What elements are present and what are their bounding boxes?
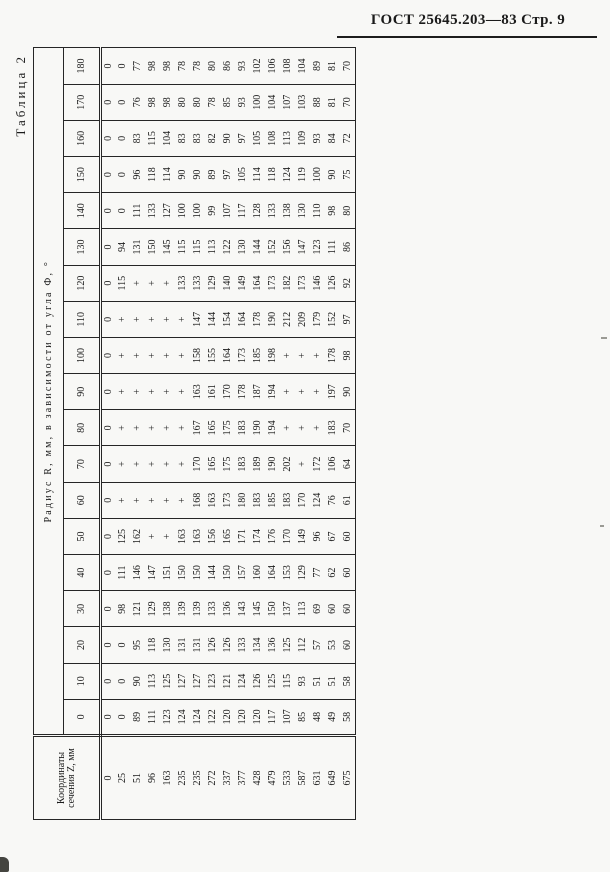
table-row: 96111113118129147++++++++150133118115989…	[146, 48, 161, 820]
r-cell: 113	[281, 120, 296, 156]
r-cell: 60	[341, 518, 356, 554]
r-cell: 125	[161, 663, 176, 699]
table-header-row-1: Координаты сечения Z, мм Радиус R, мм, в…	[34, 48, 64, 820]
z-row-header: 337	[221, 736, 236, 820]
r-cell: 162	[131, 518, 146, 554]
r-cell: 51	[326, 663, 341, 699]
r-cell: 0	[101, 374, 116, 410]
r-cell: 58	[341, 663, 356, 699]
r-cell: 60	[341, 591, 356, 627]
r-cell: 143	[236, 591, 251, 627]
r-cell: +	[281, 374, 296, 410]
r-cell: 126	[251, 663, 266, 699]
r-cell: 136	[266, 627, 281, 663]
r-cell: 149	[296, 518, 311, 554]
angle-col-header: 10	[64, 663, 101, 699]
r-cell: 165	[206, 410, 221, 446]
scan-artifact	[601, 337, 607, 339]
r-cell: 124	[176, 699, 191, 735]
angle-col-header: 160	[64, 120, 101, 156]
r-cell: 107	[221, 193, 236, 229]
r-cell: 125	[281, 627, 296, 663]
rotated-table-block: Таблица 2 Координаты сечения Z, мм Радиу…	[11, 48, 358, 820]
r-cell: 99	[206, 193, 221, 229]
r-cell: 152	[326, 301, 341, 337]
r-cell: 133	[191, 265, 206, 301]
r-cell: 115	[176, 229, 191, 265]
r-cell: +	[131, 337, 146, 373]
r-cell: 115	[146, 120, 161, 156]
r-cell: 90	[191, 157, 206, 193]
r-cell: 151	[161, 555, 176, 591]
r-cell: 97	[236, 120, 251, 156]
angle-col-header: 20	[64, 627, 101, 663]
r-cell: 60	[326, 591, 341, 627]
r-cell: +	[176, 410, 191, 446]
r-cell: 0	[101, 265, 116, 301]
z-row-header: 272	[206, 736, 221, 820]
r-cell: 0	[116, 627, 131, 663]
r-cell: 98	[146, 84, 161, 120]
r-cell: 185	[266, 482, 281, 518]
r-cell: +	[131, 482, 146, 518]
r-cell: 170	[296, 482, 311, 518]
r-cell: 133	[266, 193, 281, 229]
r-cell: 113	[146, 663, 161, 699]
radius-table: Координаты сечения Z, мм Радиус R, мм, в…	[33, 47, 356, 820]
r-cell: 173	[266, 265, 281, 301]
r-cell: 111	[146, 699, 161, 735]
r-cell: 98	[341, 337, 356, 373]
r-cell: 0	[101, 229, 116, 265]
r-cell: 164	[221, 337, 236, 373]
r-cell: 0	[101, 193, 116, 229]
r-cell: 124	[281, 157, 296, 193]
r-cell: 113	[206, 229, 221, 265]
r-cell: 78	[191, 48, 206, 84]
r-cell: 138	[281, 193, 296, 229]
r-cell: +	[116, 446, 131, 482]
r-cell: 133	[176, 265, 191, 301]
r-cell: 212	[281, 301, 296, 337]
r-cell: 165	[221, 518, 236, 554]
r-cell: +	[116, 301, 131, 337]
r-cell: 67	[326, 518, 341, 554]
radius-span-header: Радиус R, мм, в зависимости от угла Ф, °	[34, 48, 64, 736]
scan-artifact	[600, 525, 604, 527]
r-cell: 0	[116, 48, 131, 84]
r-cell: +	[146, 374, 161, 410]
r-cell: 0	[101, 663, 116, 699]
r-cell: 105	[251, 120, 266, 156]
r-cell: 126	[221, 627, 236, 663]
angle-col-header: 90	[64, 374, 101, 410]
z-row-header: 163	[161, 736, 176, 820]
r-cell: 107	[281, 699, 296, 735]
r-cell: 173	[221, 482, 236, 518]
r-cell: 146	[131, 555, 146, 591]
r-cell: 102	[251, 48, 266, 84]
r-cell: 61	[341, 482, 356, 518]
r-cell: 115	[191, 229, 206, 265]
r-cell: 53	[326, 627, 341, 663]
table-row: 51899095121146162+++++++13111196837677	[131, 48, 146, 820]
r-cell: 124	[236, 663, 251, 699]
r-cell: 122	[221, 229, 236, 265]
r-cell: 145	[161, 229, 176, 265]
r-cell: 121	[221, 663, 236, 699]
r-cell: 0	[116, 84, 131, 120]
r-cell: 147	[146, 555, 161, 591]
table-row: 2721221231261331441561631651651611551441…	[206, 48, 221, 820]
r-cell: 90	[326, 157, 341, 193]
r-cell: +	[146, 482, 161, 518]
r-cell: 57	[311, 627, 326, 663]
r-cell: 0	[101, 337, 116, 373]
r-cell: 130	[296, 193, 311, 229]
r-cell: 145	[251, 591, 266, 627]
r-cell: 89	[131, 699, 146, 735]
table-row: 6755858606060606164709098979286807572707…	[341, 48, 356, 820]
r-cell: 97	[341, 301, 356, 337]
angle-col-header: 140	[64, 193, 101, 229]
r-cell: 161	[206, 374, 221, 410]
r-cell: 183	[281, 482, 296, 518]
r-cell: +	[146, 518, 161, 554]
r-cell: 0	[101, 591, 116, 627]
z-row-header: 587	[296, 736, 311, 820]
r-cell: 100	[251, 84, 266, 120]
r-cell: +	[161, 410, 176, 446]
r-cell: 113	[296, 591, 311, 627]
r-cell: 83	[176, 120, 191, 156]
r-cell: 139	[176, 591, 191, 627]
z-row-header: 25	[116, 736, 131, 820]
r-cell: 104	[161, 120, 176, 156]
r-cell: 111	[326, 229, 341, 265]
table-row: 3771201241331431571711801831831781731641…	[236, 48, 251, 820]
r-cell: 104	[266, 84, 281, 120]
r-cell: 70	[341, 84, 356, 120]
r-cell: +	[146, 446, 161, 482]
z-row-header: 649	[326, 736, 341, 820]
r-cell: +	[311, 337, 326, 373]
r-cell: 93	[296, 663, 311, 699]
r-cell: 174	[251, 518, 266, 554]
r-cell: 108	[281, 48, 296, 84]
r-cell: +	[131, 374, 146, 410]
header-rule	[337, 36, 597, 38]
r-cell: 114	[251, 157, 266, 193]
r-cell: 95	[131, 627, 146, 663]
r-cell: +	[131, 265, 146, 301]
r-cell: 178	[251, 301, 266, 337]
r-cell: 130	[236, 229, 251, 265]
r-cell: 125	[266, 663, 281, 699]
r-cell: 173	[236, 337, 251, 373]
r-cell: +	[176, 482, 191, 518]
r-cell: 83	[191, 120, 206, 156]
table-row: 00000000000000000000	[101, 48, 116, 820]
r-cell: 182	[281, 265, 296, 301]
r-cell: 189	[251, 446, 266, 482]
r-cell: 129	[206, 265, 221, 301]
angle-col-header: 40	[64, 555, 101, 591]
r-cell: 90	[341, 374, 356, 410]
r-cell: 183	[251, 482, 266, 518]
r-cell: 0	[101, 157, 116, 193]
table-row: 6494951536062677610618319717815212611198…	[326, 48, 341, 820]
table-row: 5878593112113129149170++++20917314713011…	[296, 48, 311, 820]
r-cell: +	[161, 446, 176, 482]
r-cell: 0	[101, 410, 116, 446]
r-cell: 106	[266, 48, 281, 84]
z-row-header: 96	[146, 736, 161, 820]
table-row: 235124127131139150163++++++1331151009083…	[176, 48, 191, 820]
r-cell: 81	[326, 84, 341, 120]
r-cell: 127	[191, 663, 206, 699]
scanned-page: ГОСТ 25645.203—83 Стр. 9 Таблица 2 Коорд…	[0, 0, 610, 872]
r-cell: 157	[236, 555, 251, 591]
r-cell: +	[116, 374, 131, 410]
r-cell: 76	[131, 84, 146, 120]
r-cell: 98	[146, 48, 161, 84]
r-cell: 89	[311, 48, 326, 84]
r-cell: 109	[296, 120, 311, 156]
r-cell: 69	[311, 591, 326, 627]
r-cell: 147	[296, 229, 311, 265]
r-cell: 178	[326, 337, 341, 373]
r-cell: 98	[161, 48, 176, 84]
r-cell: 209	[296, 301, 311, 337]
r-cell: 117	[266, 699, 281, 735]
r-cell: 112	[296, 627, 311, 663]
r-cell: 155	[206, 337, 221, 373]
r-cell: 136	[221, 591, 236, 627]
r-cell: 140	[221, 265, 236, 301]
table-row: 631485157697796124172+++1791461231101009…	[311, 48, 326, 820]
r-cell: 144	[206, 555, 221, 591]
r-cell: 0	[116, 193, 131, 229]
r-cell: 90	[221, 120, 236, 156]
r-cell: 117	[236, 193, 251, 229]
scan-artifact	[0, 857, 9, 872]
r-cell: 190	[266, 301, 281, 337]
angle-col-header: 130	[64, 229, 101, 265]
r-cell: 183	[236, 410, 251, 446]
r-cell: 78	[206, 84, 221, 120]
table-row: 163123125130138151++++++++14512711410498…	[161, 48, 176, 820]
r-cell: 197	[326, 374, 341, 410]
r-cell: 194	[266, 374, 281, 410]
r-cell: 64	[341, 446, 356, 482]
r-cell: 164	[236, 301, 251, 337]
z-column-header-line2: сечения Z, мм	[67, 737, 77, 819]
r-cell: +	[161, 265, 176, 301]
r-cell: 93	[236, 48, 251, 84]
r-cell: 175	[221, 446, 236, 482]
r-cell: 163	[206, 482, 221, 518]
table-row: 2351241271311391501631681701671631581471…	[191, 48, 206, 820]
r-cell: 98	[116, 591, 131, 627]
r-cell: 176	[266, 518, 281, 554]
angle-col-header: 180	[64, 48, 101, 84]
r-cell: 170	[191, 446, 206, 482]
r-cell: +	[161, 518, 176, 554]
r-cell: +	[296, 446, 311, 482]
r-cell: 80	[176, 84, 191, 120]
r-cell: +	[296, 337, 311, 373]
r-cell: 153	[281, 555, 296, 591]
angle-header-row: 0102030405060708090100110120130140150160…	[64, 48, 101, 820]
z-row-header: 479	[266, 736, 281, 820]
r-cell: 48	[311, 699, 326, 735]
r-cell: +	[131, 410, 146, 446]
r-cell: +	[116, 410, 131, 446]
table-row: 2500098111125++++++1159400000	[116, 48, 131, 820]
r-cell: 82	[206, 120, 221, 156]
r-cell: 111	[131, 193, 146, 229]
r-cell: 80	[341, 193, 356, 229]
z-row-header: 428	[251, 736, 266, 820]
r-cell: 0	[116, 157, 131, 193]
r-cell: 0	[101, 518, 116, 554]
z-column-header: Координаты сечения Z, мм	[34, 736, 101, 820]
r-cell: 119	[296, 157, 311, 193]
z-column-header-line1: Координаты	[57, 737, 67, 819]
r-cell: 77	[311, 555, 326, 591]
r-cell: 147	[191, 301, 206, 337]
r-cell: 80	[191, 84, 206, 120]
angle-col-header: 70	[64, 446, 101, 482]
z-row-header: 235	[176, 736, 191, 820]
r-cell: +	[146, 301, 161, 337]
angle-col-header: 0	[64, 699, 101, 735]
z-row-header: 51	[131, 736, 146, 820]
r-cell: 187	[251, 374, 266, 410]
r-cell: 123	[161, 699, 176, 735]
r-cell: 0	[101, 120, 116, 156]
r-cell: 172	[311, 446, 326, 482]
r-cell: 139	[191, 591, 206, 627]
r-cell: 0	[101, 301, 116, 337]
r-cell: 180	[236, 482, 251, 518]
r-cell: 115	[116, 265, 131, 301]
r-cell: 134	[251, 627, 266, 663]
r-cell: 129	[296, 555, 311, 591]
r-cell: 103	[296, 84, 311, 120]
r-cell: 165	[206, 446, 221, 482]
r-cell: 129	[146, 591, 161, 627]
r-cell: 93	[311, 120, 326, 156]
r-cell: 170	[221, 374, 236, 410]
r-cell: 171	[236, 518, 251, 554]
r-cell: 81	[326, 48, 341, 84]
r-cell: 164	[266, 555, 281, 591]
document-header: ГОСТ 25645.203—83 Стр. 9	[340, 12, 596, 29]
r-cell: 131	[131, 229, 146, 265]
r-cell: 123	[206, 663, 221, 699]
r-cell: 146	[311, 265, 326, 301]
r-cell: 202	[281, 446, 296, 482]
r-cell: 100	[191, 193, 206, 229]
r-cell: 94	[116, 229, 131, 265]
r-cell: 185	[251, 337, 266, 373]
r-cell: 0	[116, 120, 131, 156]
r-cell: 160	[251, 555, 266, 591]
r-cell: +	[161, 482, 176, 518]
r-cell: 58	[341, 699, 356, 735]
r-cell: 190	[266, 446, 281, 482]
r-cell: 75	[341, 157, 356, 193]
r-cell: +	[161, 374, 176, 410]
r-cell: 108	[266, 120, 281, 156]
r-cell: 90	[176, 157, 191, 193]
r-cell: 0	[101, 48, 116, 84]
r-cell: 107	[281, 84, 296, 120]
z-row-header: 533	[281, 736, 296, 820]
r-cell: 62	[326, 555, 341, 591]
r-cell: 183	[326, 410, 341, 446]
r-cell: 0	[101, 446, 116, 482]
r-cell: 128	[251, 193, 266, 229]
r-cell: +	[146, 410, 161, 446]
r-cell: 122	[206, 699, 221, 735]
table-row: 4791171251361501641761851901941941981901…	[266, 48, 281, 820]
r-cell: 0	[101, 84, 116, 120]
z-row-header: 0	[101, 736, 116, 820]
r-cell: 173	[296, 265, 311, 301]
angle-col-header: 150	[64, 157, 101, 193]
angle-col-header: 100	[64, 337, 101, 373]
r-cell: 84	[326, 120, 341, 156]
r-cell: 137	[281, 591, 296, 627]
r-cell: 106	[326, 446, 341, 482]
r-cell: 156	[206, 518, 221, 554]
r-cell: 96	[311, 518, 326, 554]
r-cell: 124	[191, 699, 206, 735]
r-cell: 138	[161, 591, 176, 627]
r-cell: 144	[206, 301, 221, 337]
table-row: 533107115125137153170183202+++2121821561…	[281, 48, 296, 820]
r-cell: +	[146, 337, 161, 373]
r-cell: 98	[161, 84, 176, 120]
r-cell: 83	[131, 120, 146, 156]
r-cell: 167	[191, 410, 206, 446]
r-cell: 131	[191, 627, 206, 663]
z-row-header: 675	[341, 736, 356, 820]
r-cell: 125	[116, 518, 131, 554]
r-cell: +	[131, 301, 146, 337]
r-cell: 170	[281, 518, 296, 554]
r-cell: 0	[101, 555, 116, 591]
r-cell: 76	[326, 482, 341, 518]
r-cell: 104	[296, 48, 311, 84]
r-cell: +	[176, 446, 191, 482]
r-cell: 100	[311, 157, 326, 193]
r-cell: 97	[221, 157, 236, 193]
r-cell: 163	[191, 374, 206, 410]
r-cell: 96	[131, 157, 146, 193]
angle-col-header: 50	[64, 518, 101, 554]
r-cell: +	[311, 410, 326, 446]
r-cell: 150	[176, 555, 191, 591]
r-cell: +	[131, 446, 146, 482]
r-cell: 150	[266, 591, 281, 627]
r-cell: 163	[176, 518, 191, 554]
r-cell: 130	[161, 627, 176, 663]
r-cell: 49	[326, 699, 341, 735]
